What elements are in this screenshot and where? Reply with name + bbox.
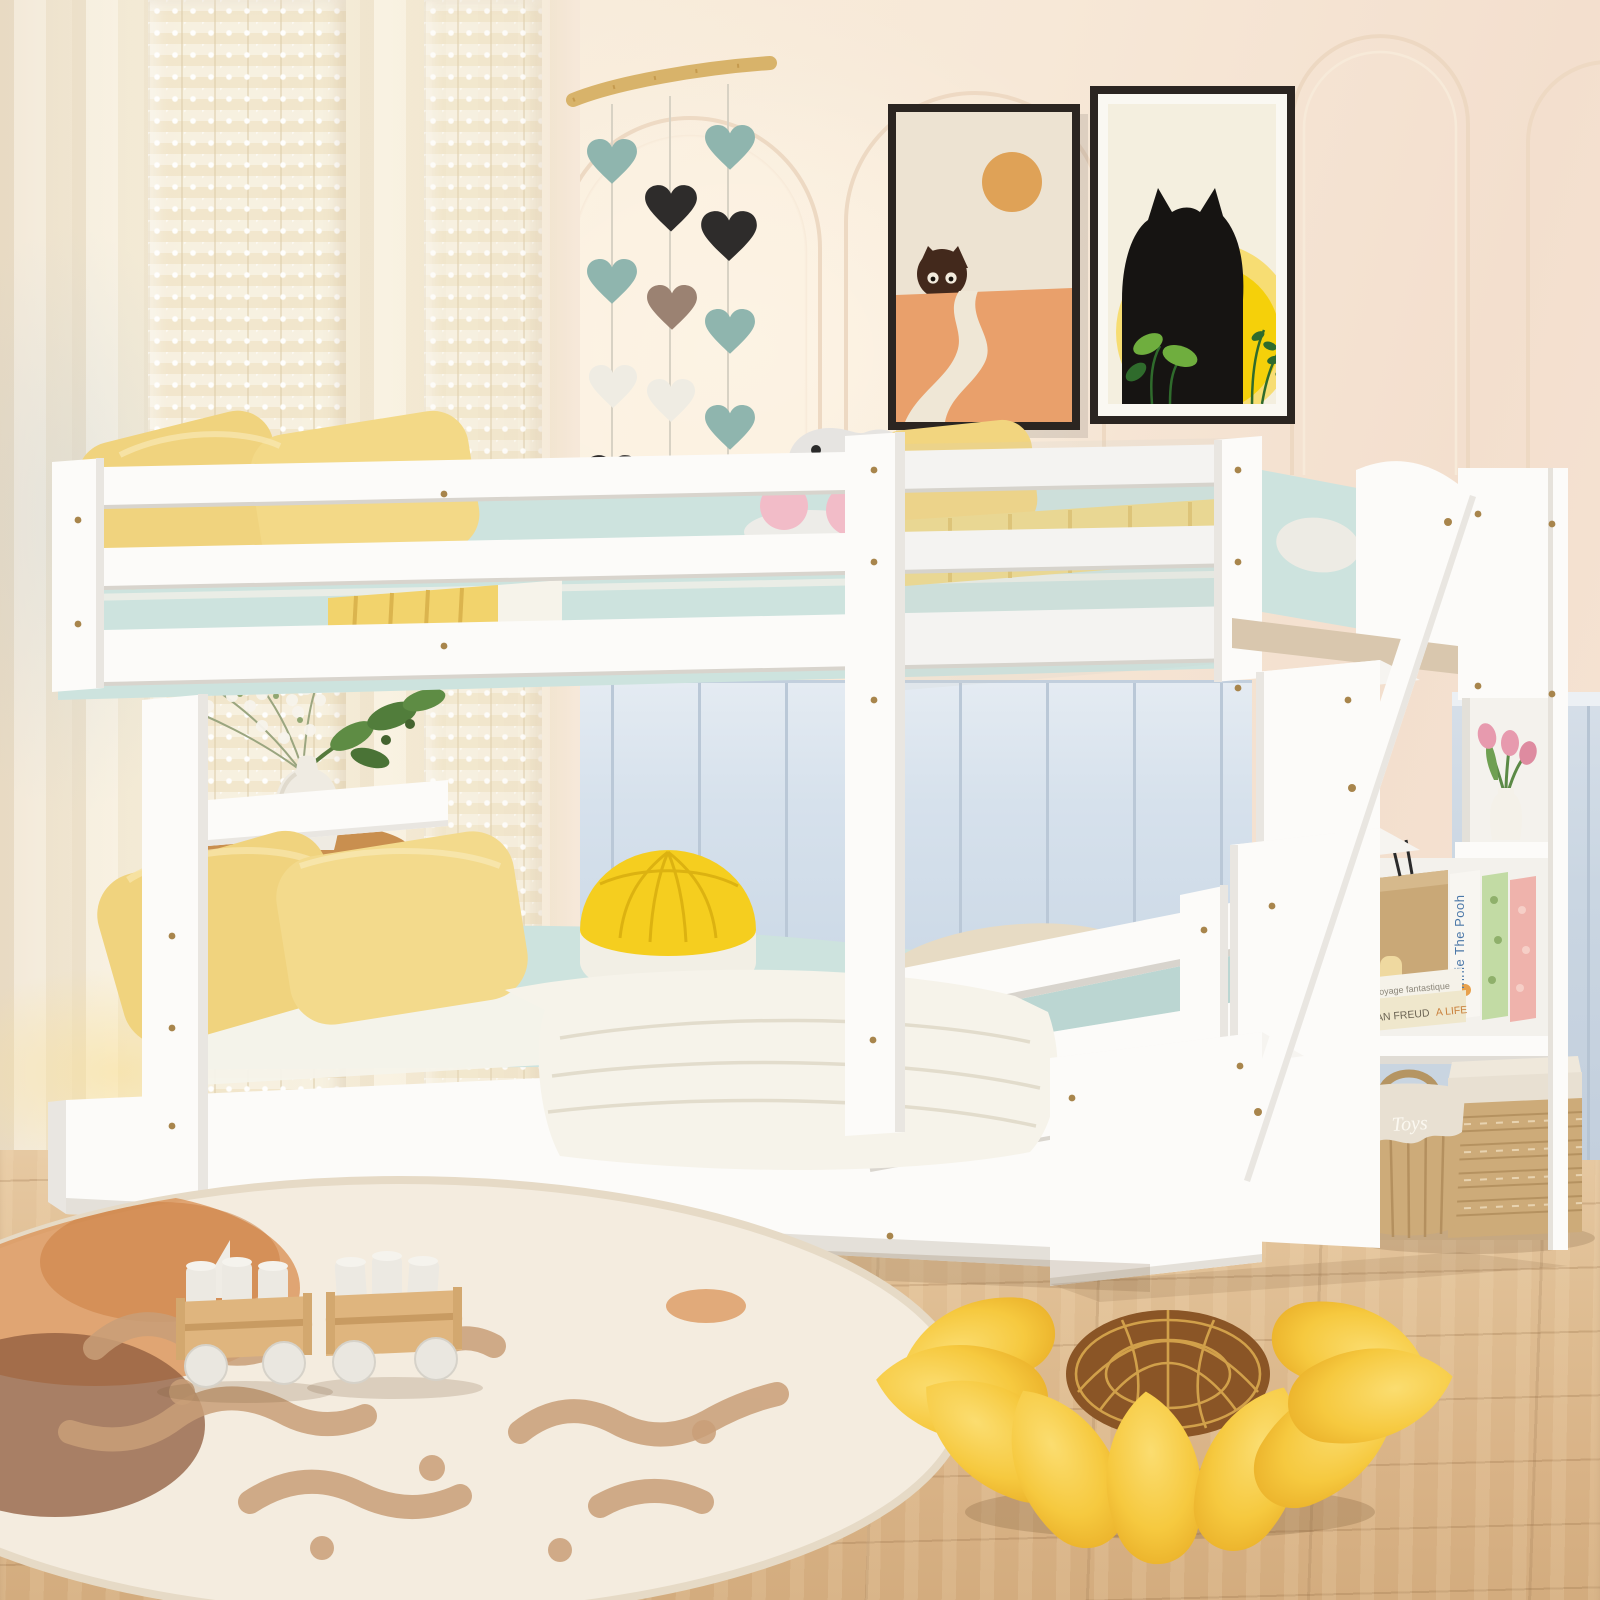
books-cubby: Winnie The Pooh Voyage fantastique LUCIA… (1352, 840, 1552, 1042)
green-branch (310, 684, 448, 772)
book-green (1482, 872, 1508, 1020)
white-blanket (505, 970, 1058, 1170)
heart (705, 405, 755, 450)
basket-label: Toys (1391, 1112, 1428, 1136)
upper-bunk-rails (52, 436, 1458, 692)
sunflower-pillow (870, 1284, 1463, 1568)
tulip-cubby (1462, 698, 1552, 848)
wood-branch (573, 63, 770, 100)
bedroom-scene: Winnie The Pooh Voyage fantastique LUCIA… (0, 0, 1600, 1600)
poster-black-cat-sun (1090, 86, 1296, 424)
heart (647, 285, 697, 330)
heart (705, 125, 755, 170)
cat-posters (888, 86, 1296, 438)
heart (705, 309, 755, 354)
scene-artwork: Winnie The Pooh Voyage fantastique LUCIA… (0, 0, 1600, 1600)
poster-desert-cat (888, 104, 1080, 430)
